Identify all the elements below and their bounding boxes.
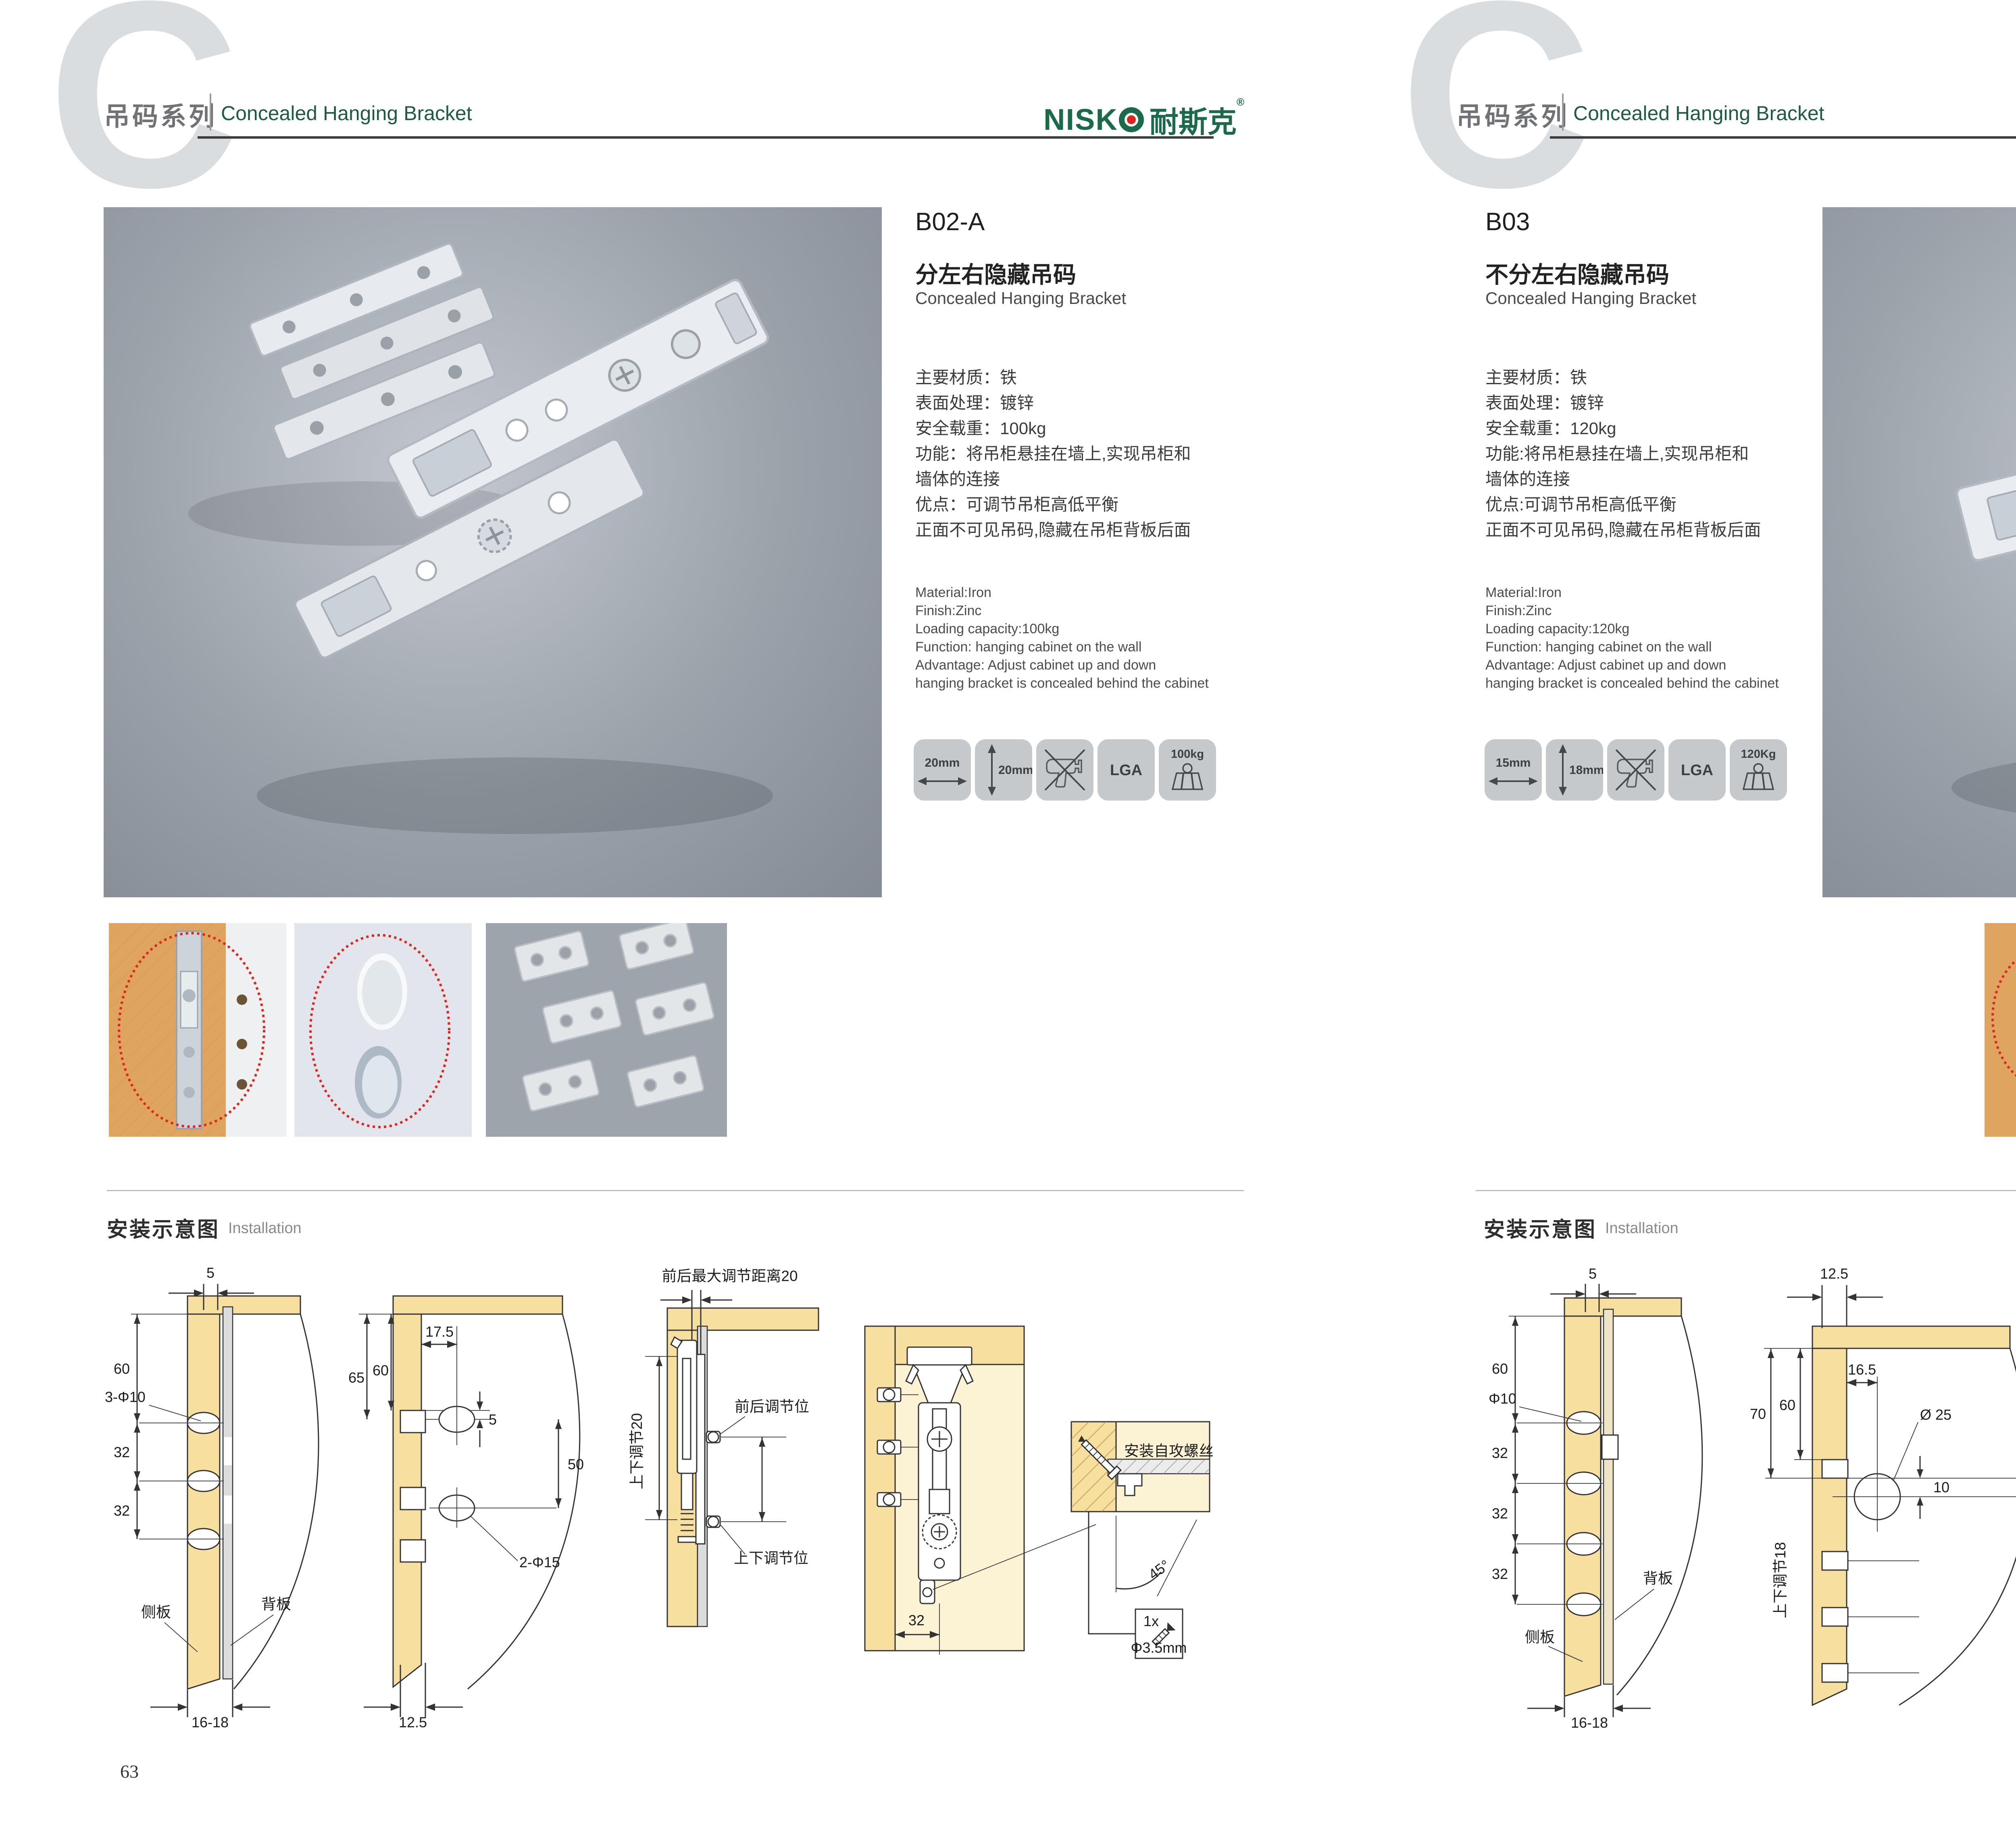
- diagram-adjustment-b02a: 前后最大调节距离20 上下调节20 前后调节位 上下调节位: [617, 1262, 843, 1729]
- thumb-installed-side: [1985, 923, 2016, 1137]
- spec-line: 正面不可见吊码,隐藏在吊柜背板后面: [1485, 517, 1761, 543]
- page-number: 63: [120, 1761, 139, 1782]
- no-drill-icon: [1036, 739, 1093, 801]
- spec-line: Finish:Zinc: [915, 602, 1209, 620]
- spec-line: Loading capacity:100kg: [915, 620, 1209, 638]
- catalog-spread: C 吊码系列 Concealed Hanging Bracket NISK耐斯克…: [0, 0, 2016, 1847]
- spec-line: Advantage: Adjust cabinet up and down: [1485, 656, 1779, 674]
- spec-line: Function: hanging cabinet on the wall: [915, 638, 1209, 656]
- brand-logo: NISK耐斯克®: [1043, 98, 1244, 141]
- dim-label: 32: [1492, 1505, 1508, 1522]
- dim-label: 60: [373, 1362, 389, 1379]
- dim-label: 32: [1492, 1566, 1508, 1582]
- dim-label: 32: [114, 1444, 130, 1460]
- section-rule: [1476, 1190, 2016, 1191]
- dim-label: 10: [1933, 1479, 1949, 1495]
- dim-label: 16-18: [192, 1714, 229, 1729]
- height-label: 20mm: [998, 763, 1032, 777]
- series-title-cn: 吊码系列: [1456, 96, 1569, 133]
- spec-line: Material:Iron: [915, 584, 1209, 602]
- angle-label: 45°: [1145, 1556, 1173, 1583]
- load-label: 120Kg: [1741, 748, 1776, 761]
- dim-label: 12.5: [1820, 1265, 1848, 1282]
- product-name-en: Concealed Hanging Bracket: [1485, 289, 1696, 308]
- diagram-front-detail-b02a: 32 安装自攻螺丝 45° 1x Φ3.5mm: [847, 1270, 1226, 1733]
- lga-cert-icon: LGA: [1098, 739, 1155, 801]
- dim-label: 5: [206, 1265, 215, 1281]
- side-panel-label: 侧板: [1525, 1629, 1555, 1645]
- installation-title-en: Installation: [228, 1220, 302, 1237]
- hole-dia-label: Ø 25: [1920, 1406, 1951, 1423]
- lga-label: LGA: [1681, 762, 1713, 779]
- specs-cn: 主要材质：铁 表面处理：镀锌 安全载重：120kg 功能:将吊柜悬挂在墙上,实现…: [1485, 365, 1761, 543]
- height-label: 18mm: [1569, 763, 1603, 777]
- dim-label: 65: [348, 1369, 364, 1386]
- dim-label: 60: [1779, 1397, 1795, 1413]
- spec-line: 优点:可调节吊柜高低平衡: [1485, 492, 1761, 517]
- load-label: 100kg: [1171, 748, 1204, 761]
- product-photo-b03: [1822, 207, 2016, 897]
- dim-label: 60: [1492, 1360, 1508, 1377]
- header-rule: [198, 136, 1214, 139]
- dim-label: 5: [489, 1411, 497, 1428]
- spec-line: hanging bracket is concealed behind the …: [1485, 674, 1779, 693]
- spec-line: 正面不可见吊码,隐藏在吊柜背板后面: [915, 517, 1191, 543]
- lga-label: LGA: [1110, 762, 1142, 779]
- diagram-side-section-b02a: 5 60 32 32 3-Φ10 侧板 背板 16-18: [101, 1262, 351, 1729]
- lga-cert-icon: LGA: [1668, 739, 1726, 801]
- spec-line: Loading capacity:120kg: [1485, 620, 1779, 638]
- spec-line: 功能:将吊柜悬挂在墙上,实现吊柜和: [1485, 441, 1761, 466]
- diagram-drilling-b03: 12.5 16.5 Ø 25 10 70 60 上下调节18: [1746, 1262, 2016, 1729]
- dim-label: 32: [1492, 1445, 1508, 1461]
- load-capacity-icon: 120Kg: [1730, 739, 1787, 801]
- hole-label: Φ10: [1489, 1390, 1516, 1407]
- thumb-concealed-front: [294, 923, 472, 1137]
- thumb-installed-side: [109, 923, 286, 1137]
- screw-dia-label: Φ3.5mm: [1131, 1639, 1187, 1656]
- width-label: 15mm: [1496, 756, 1531, 770]
- series-title-en: Concealed Hanging Bracket: [1573, 102, 1824, 125]
- dim-label: 17.5: [425, 1323, 454, 1340]
- diagram-drilling-b02a: 5 17.5 65 60 50 2-Φ15 12.5: [347, 1262, 609, 1729]
- height-range-icon: 18mm: [1546, 739, 1603, 801]
- spec-line: 墙体的连接: [1485, 466, 1761, 492]
- spec-line: 主要材质：铁: [1485, 365, 1761, 390]
- hole-label: 3-Φ10: [105, 1389, 146, 1405]
- adjust-range-label: 前后最大调节距离20: [662, 1268, 798, 1284]
- installation-title-cn: 安装示意图: [107, 1213, 220, 1243]
- specs-en: Material:Iron Finish:Zinc Loading capaci…: [915, 584, 1209, 693]
- dim-label: 32: [908, 1612, 925, 1629]
- back-panel-label: 背板: [261, 1596, 291, 1612]
- spec-line: 功能：将吊柜悬挂在墙上,实现吊柜和: [915, 441, 1191, 466]
- width-label: 20mm: [925, 756, 960, 770]
- brand-latin: NISK: [1043, 102, 1118, 137]
- series-title-cn: 吊码系列: [104, 96, 217, 133]
- registered-mark: ®: [1237, 96, 1244, 108]
- height-range-icon: 20mm: [975, 739, 1032, 801]
- dim-label: 16-18: [1571, 1714, 1608, 1729]
- vertical-adjust-label: 上下调节18: [1772, 1542, 1789, 1618]
- spec-line: 表面处理：镀锌: [1485, 390, 1761, 416]
- header-rule: [1550, 136, 2016, 139]
- brand-cn: 耐斯克: [1150, 98, 1237, 141]
- product-code: B03: [1485, 208, 1530, 236]
- width-range-icon: 20mm: [914, 739, 971, 801]
- feature-icons: 20mm 20mm LGA 100kg: [914, 739, 1216, 801]
- dim-label: 16.5: [1848, 1361, 1876, 1378]
- front-back-adjust-label: 前后调节位: [735, 1398, 809, 1415]
- product-name-en: Concealed Hanging Bracket: [915, 289, 1126, 308]
- header-divider: [210, 94, 211, 131]
- width-range-icon: 15mm: [1485, 739, 1542, 801]
- spec-line: 表面处理：镀锌: [915, 390, 1191, 416]
- hole-label: 2-Φ15: [519, 1554, 560, 1570]
- installation-title-cn: 安装示意图: [1484, 1213, 1597, 1243]
- product-code: B02-A: [915, 208, 985, 236]
- qty-label: 1x: [1143, 1613, 1159, 1629]
- specs-en: Material:Iron Finish:Zinc Loading capaci…: [1485, 584, 1779, 693]
- no-drill-icon: [1607, 739, 1664, 801]
- product-name-cn: 不分左右隐藏吊码: [1485, 256, 1669, 289]
- dim-label: 12.5: [399, 1714, 427, 1729]
- spec-line: Material:Iron: [1485, 584, 1779, 602]
- spec-line: 墙体的连接: [915, 466, 1191, 492]
- product-photo-b02a: [104, 207, 882, 897]
- dim-label: 32: [114, 1502, 130, 1519]
- dim-label: 70: [1750, 1406, 1766, 1422]
- side-panel-label: 侧板: [141, 1604, 171, 1620]
- screw-install-label: 安装自攻螺丝: [1124, 1443, 1214, 1459]
- feature-icons: 15mm 18mm LGA 120Kg: [1485, 739, 1787, 801]
- spec-line: 安全载重：100kg: [915, 416, 1191, 441]
- up-down-adjust-label: 上下调节位: [734, 1550, 808, 1566]
- diagram-side-section-b03: 5 60 32 32 32 Φ10 背板 侧板 16-18: [1480, 1262, 1742, 1729]
- logo-o-icon: [1119, 107, 1144, 132]
- product-photo-illustration: [1822, 207, 2016, 897]
- spec-line: 安全载重：120kg: [1485, 416, 1761, 441]
- dim-label: 60: [114, 1360, 130, 1377]
- specs-cn: 主要材质：铁 表面处理：镀锌 安全载重：100kg 功能：将吊柜悬挂在墙上,实现…: [915, 365, 1191, 543]
- spec-line: hanging bracket is concealed behind the …: [915, 674, 1209, 693]
- spec-line: 主要材质：铁: [915, 365, 1191, 390]
- spec-line: 优点：可调节吊柜高低平衡: [915, 492, 1191, 517]
- series-title-en: Concealed Hanging Bracket: [221, 102, 472, 125]
- thumb-parts-set: [486, 923, 727, 1137]
- dim-label: 5: [1589, 1265, 1597, 1282]
- spec-line: Advantage: Adjust cabinet up and down: [915, 656, 1209, 674]
- product-name-cn: 分左右隐藏吊码: [915, 256, 1076, 289]
- section-rule: [107, 1190, 1244, 1191]
- load-capacity-icon: 100kg: [1159, 739, 1216, 801]
- product-photo-illustration: [104, 207, 882, 897]
- spec-line: Finish:Zinc: [1485, 602, 1779, 620]
- back-panel-label: 背板: [1643, 1570, 1673, 1587]
- dim-label: 50: [568, 1456, 584, 1473]
- installation-title-en: Installation: [1605, 1220, 1679, 1237]
- header-divider: [1562, 94, 1564, 131]
- vertical-adjust-label: 上下调节20: [629, 1413, 645, 1489]
- spec-line: Function: hanging cabinet on the wall: [1485, 638, 1779, 656]
